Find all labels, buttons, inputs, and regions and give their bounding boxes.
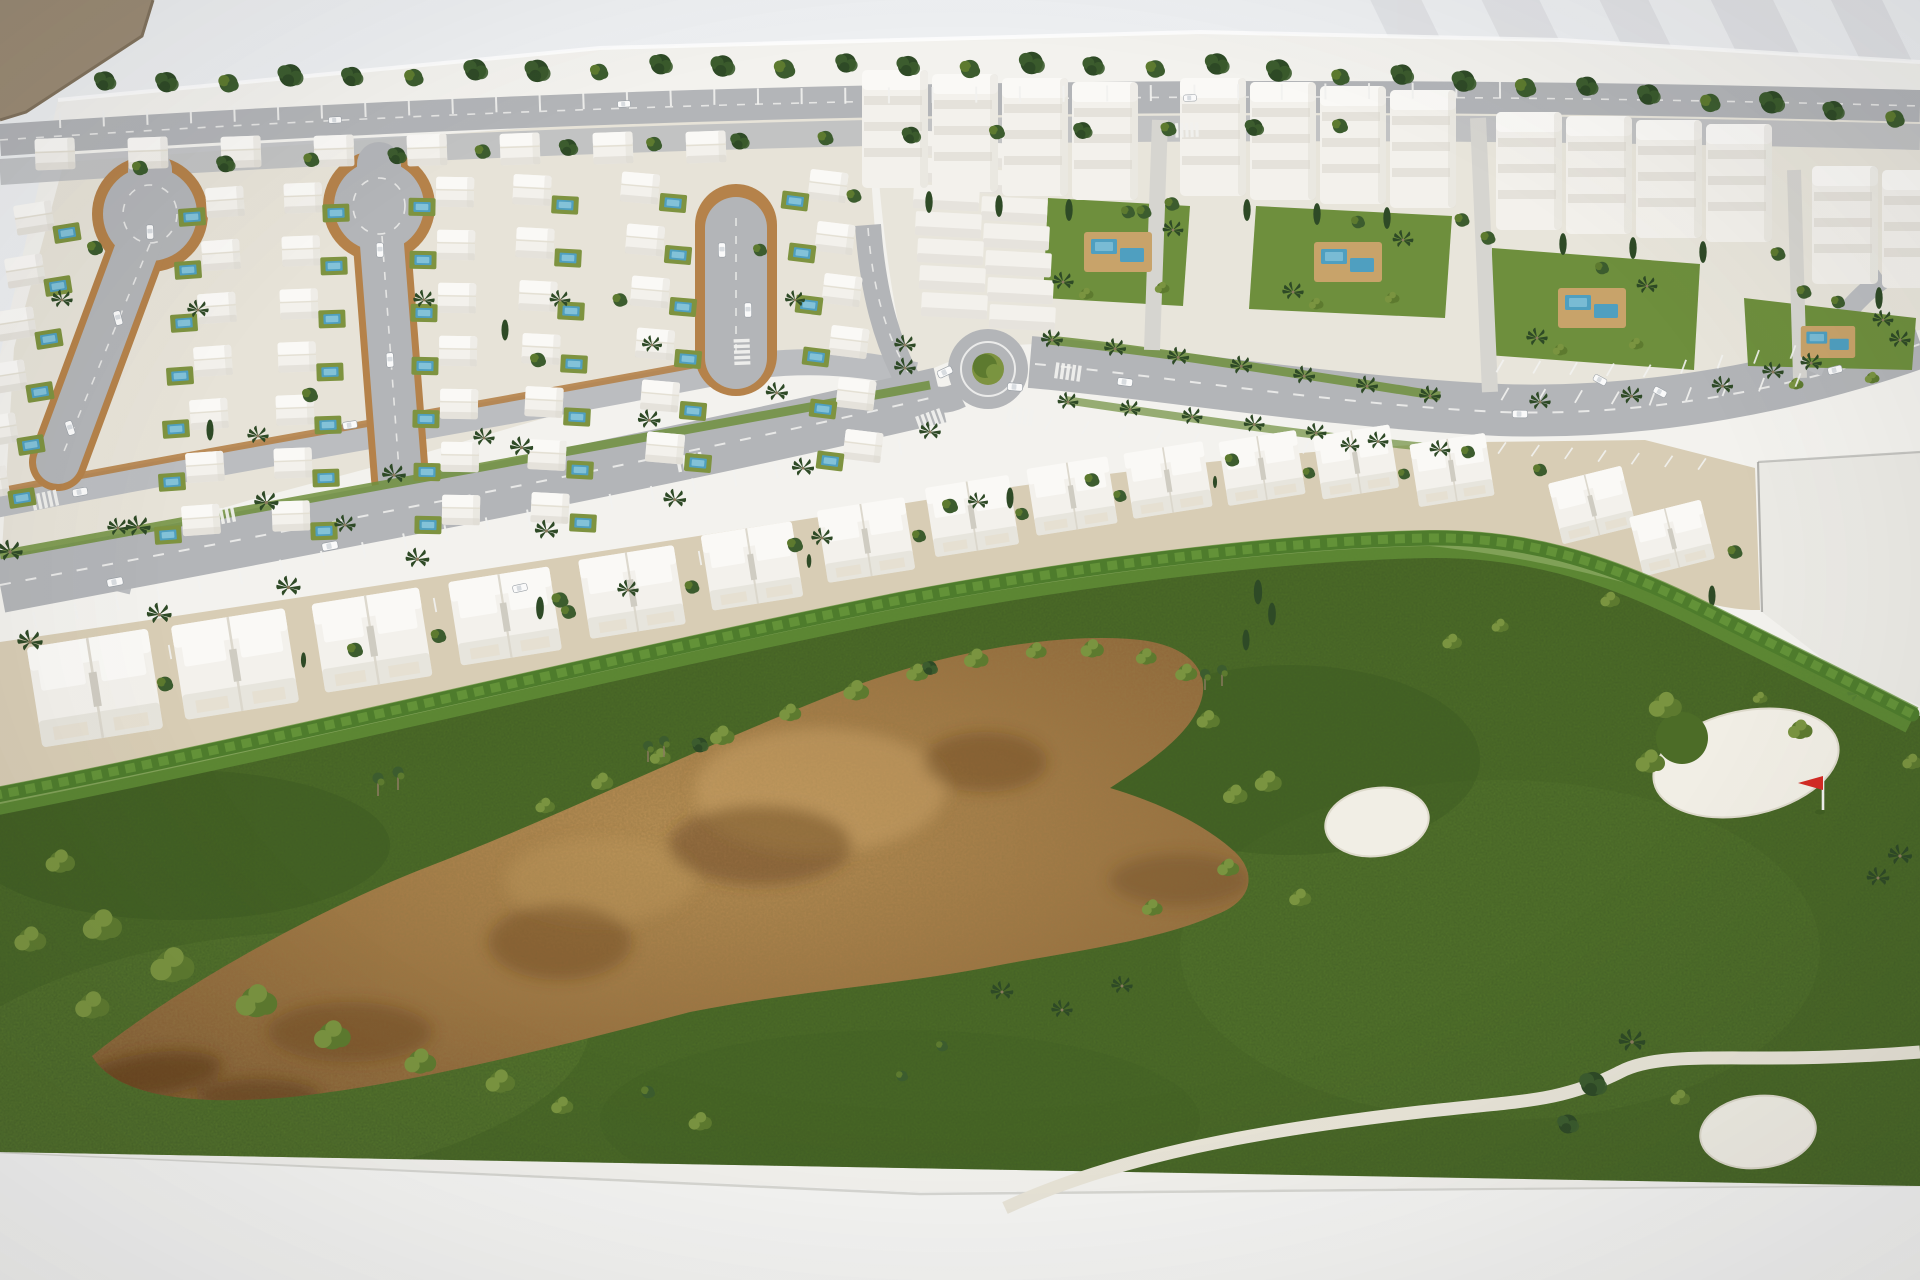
photo-of-architectural-model: Photograph of an architectural scale mod… [0,0,1920,1280]
model-photo: Photograph of an architectural scale mod… [0,0,1920,1280]
photo-vignette [0,0,1920,1280]
